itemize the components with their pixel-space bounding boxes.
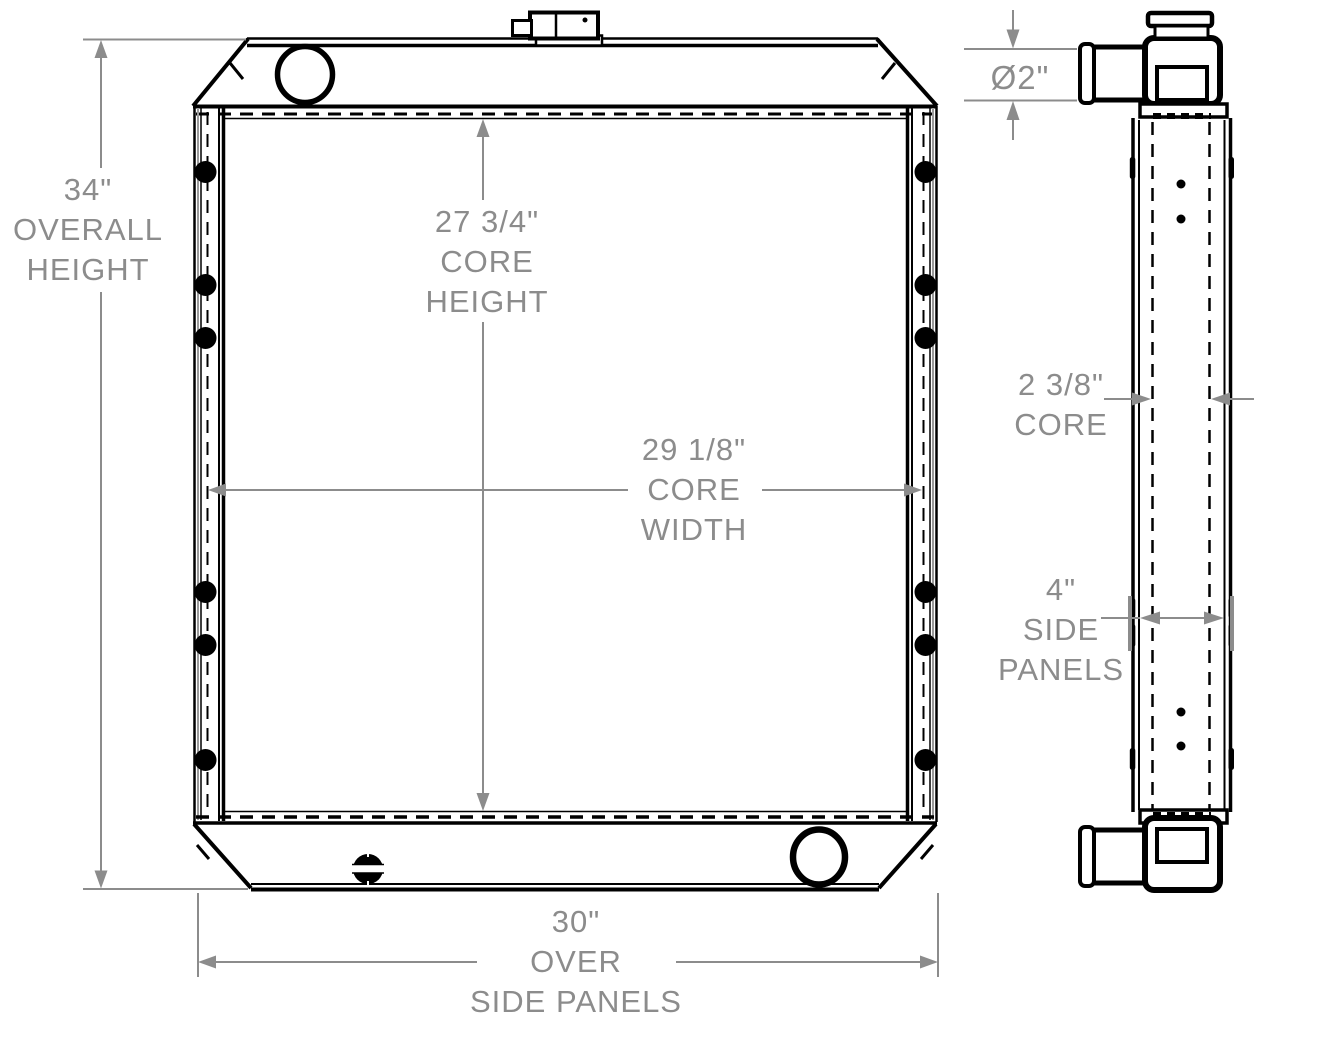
bolt-hole bbox=[195, 274, 217, 296]
arrowhead-right bbox=[920, 956, 938, 969]
filler-opening-circle bbox=[278, 47, 333, 103]
radiator-drawing: 34" OVERALL HEIGHT 27 3/4" CORE HEIGHT 2… bbox=[0, 0, 1323, 1048]
bolt-hole bbox=[915, 581, 937, 603]
bolt-hole bbox=[195, 749, 217, 771]
core-height-label: 27 3/4" CORE HEIGHT bbox=[397, 202, 577, 322]
drain-plug bbox=[351, 852, 385, 886]
right-side-panel bbox=[908, 106, 937, 822]
side-filler-cap bbox=[1148, 13, 1212, 26]
tube-diameter-value: Ø2" bbox=[984, 58, 1056, 98]
side-top-tank bbox=[1140, 13, 1227, 117]
bottom-left-chamfer bbox=[194, 824, 251, 888]
arrowhead-left bbox=[198, 956, 216, 969]
filler-cap bbox=[513, 13, 603, 46]
overall-height-value: 34" bbox=[3, 170, 173, 210]
side-view bbox=[1080, 13, 1234, 890]
arrowhead-down bbox=[1007, 30, 1020, 49]
over-side-panels-value: 30" bbox=[426, 902, 726, 942]
arrowhead-down bbox=[477, 793, 490, 811]
tube-end-cap bbox=[1080, 827, 1094, 886]
side-core bbox=[1130, 118, 1234, 812]
front-top-tank bbox=[193, 39, 937, 119]
bolt-hole bbox=[915, 161, 937, 183]
cap-lever-tab bbox=[513, 21, 532, 36]
side-panels-label: 4" SIDE PANELS bbox=[971, 570, 1151, 690]
arrowhead-left bbox=[1211, 393, 1230, 406]
bolt-hole bbox=[195, 161, 217, 183]
arrowhead-down bbox=[95, 871, 108, 889]
overall-height-label: 34" OVERALL HEIGHT bbox=[3, 170, 173, 290]
bolt-hole bbox=[195, 327, 217, 349]
side-bottom-tank bbox=[1080, 810, 1227, 890]
core-height-value: 27 3/4" bbox=[397, 202, 577, 242]
outlet-opening-circle bbox=[793, 830, 845, 885]
arrowhead-up bbox=[95, 40, 108, 58]
arrowhead-up bbox=[477, 119, 490, 137]
left-side-panel bbox=[195, 106, 224, 822]
side-top-tube bbox=[1080, 44, 1145, 103]
bolt-hole bbox=[915, 634, 937, 656]
arrowhead-up bbox=[1007, 101, 1020, 120]
front-view bbox=[193, 13, 937, 890]
core-width-value: 29 1/8" bbox=[604, 430, 784, 470]
front-bottom-tank bbox=[193, 812, 937, 890]
over-side-panels-label: 30" OVER SIDE PANELS bbox=[426, 902, 726, 1022]
arrowhead-right bbox=[1204, 612, 1224, 625]
core-thickness-label: 2 3/8" CORE bbox=[986, 365, 1136, 445]
bottom-right-chamfer bbox=[879, 824, 936, 888]
bolt-hole bbox=[915, 327, 937, 349]
arrowhead-left bbox=[208, 484, 226, 497]
bolt-hole bbox=[195, 634, 217, 656]
side-panels-value: 4" bbox=[971, 570, 1151, 610]
bolt-hole bbox=[195, 581, 217, 603]
tube-end-cap bbox=[1080, 44, 1094, 103]
bolt-hole bbox=[915, 274, 937, 296]
bolt-hole bbox=[915, 749, 937, 771]
core-thickness-value: 2 3/8" bbox=[986, 365, 1136, 405]
side-core-holes bbox=[1177, 180, 1186, 751]
dim-core-width bbox=[208, 484, 922, 497]
core-width-label: 29 1/8" CORE WIDTH bbox=[604, 430, 784, 550]
tube-diameter-label: Ø2" bbox=[984, 58, 1056, 98]
top-left-chamfer bbox=[193, 39, 248, 106]
side-filler-neck bbox=[1155, 26, 1208, 38]
